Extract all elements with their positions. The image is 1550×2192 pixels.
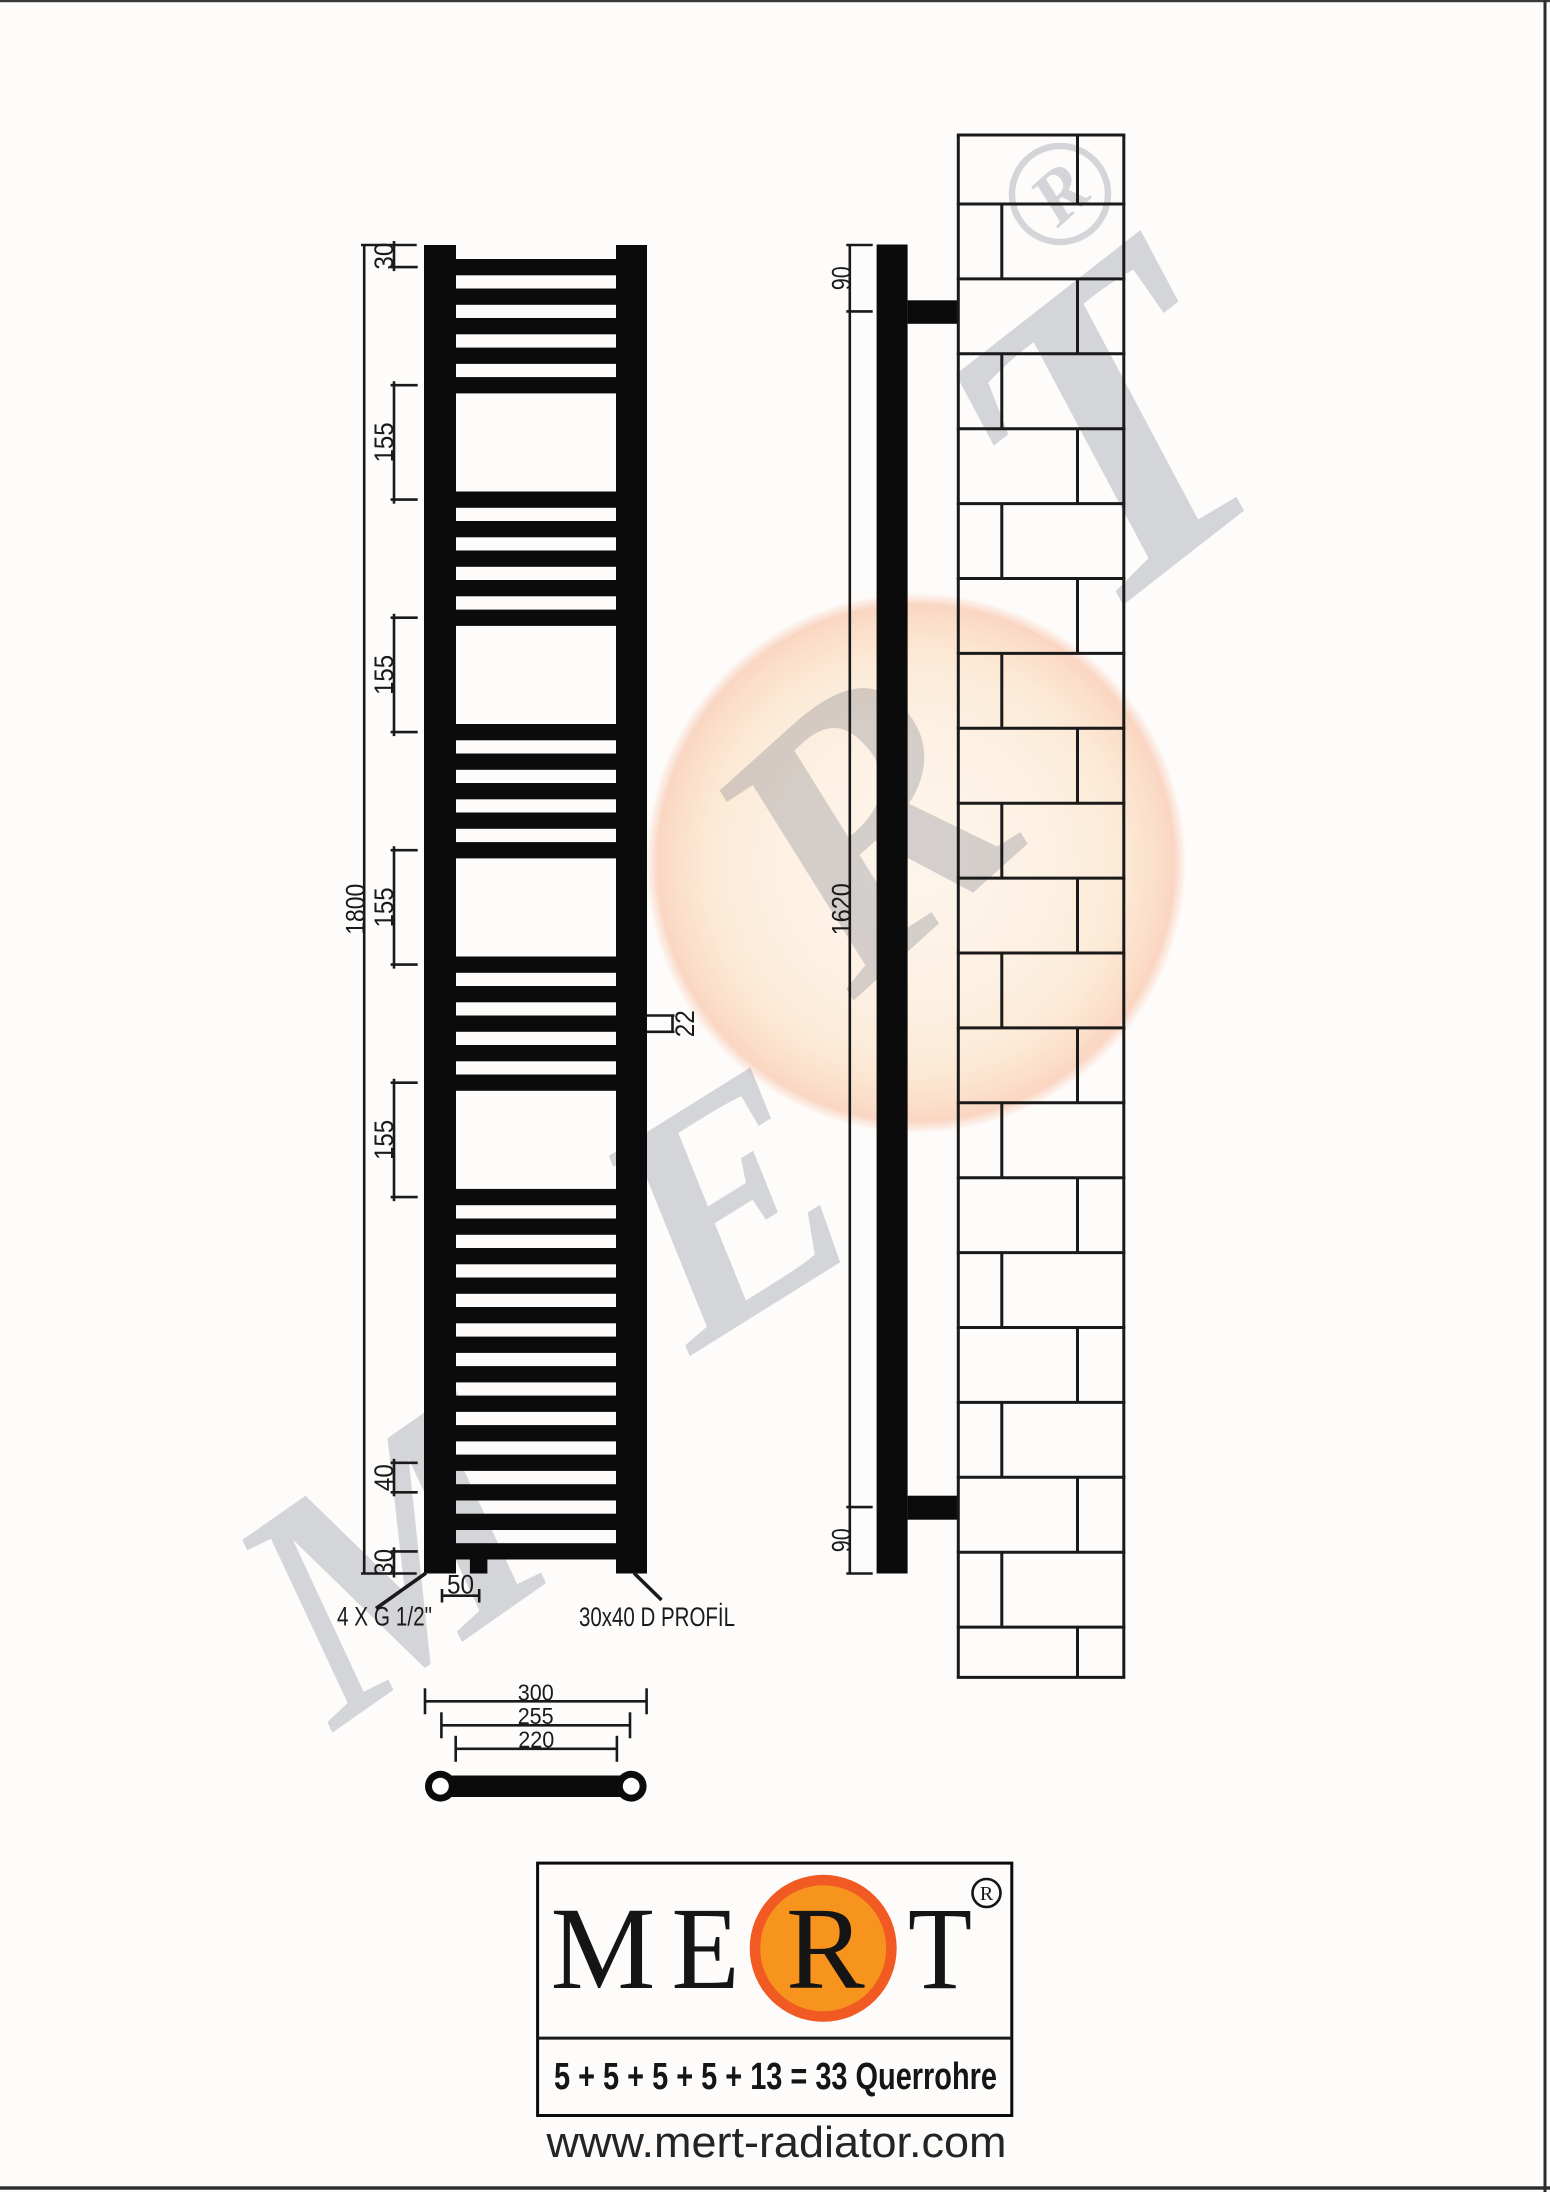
svg-text:5 + 5 + 5 + 5 + 13 = 33 Querro: 5 + 5 + 5 + 5 + 13 = 33 Querrohre: [554, 2056, 997, 2098]
svg-text:155: 155: [369, 655, 399, 695]
svg-text:4 X G 1/2": 4 X G 1/2": [337, 1602, 432, 1632]
svg-text:30: 30: [369, 1549, 399, 1576]
svg-text:30: 30: [369, 243, 399, 270]
svg-text:M: M: [551, 1883, 656, 2014]
svg-text:R: R: [980, 1883, 994, 1905]
svg-text:40: 40: [369, 1464, 399, 1491]
svg-text:1800: 1800: [341, 884, 371, 935]
svg-text:30x40 D PROFİL: 30x40 D PROFİL: [579, 1601, 735, 1632]
svg-text:www.mert-radiator.com: www.mert-radiator.com: [545, 2118, 1006, 2167]
svg-text:90: 90: [826, 266, 856, 290]
svg-text:T: T: [908, 1883, 972, 2014]
svg-text:50: 50: [447, 1570, 474, 1600]
svg-text:E: E: [672, 1883, 740, 2014]
svg-text:1620: 1620: [826, 883, 856, 935]
svg-text:300: 300: [518, 1679, 554, 1705]
svg-text:155: 155: [369, 887, 399, 927]
svg-text:155: 155: [369, 1120, 399, 1160]
svg-text:155: 155: [369, 422, 399, 462]
svg-text:90: 90: [826, 1528, 856, 1552]
svg-text:255: 255: [518, 1703, 554, 1729]
svg-text:22: 22: [670, 1010, 700, 1037]
svg-text:220: 220: [518, 1726, 554, 1752]
svg-text:R: R: [786, 1883, 865, 2014]
